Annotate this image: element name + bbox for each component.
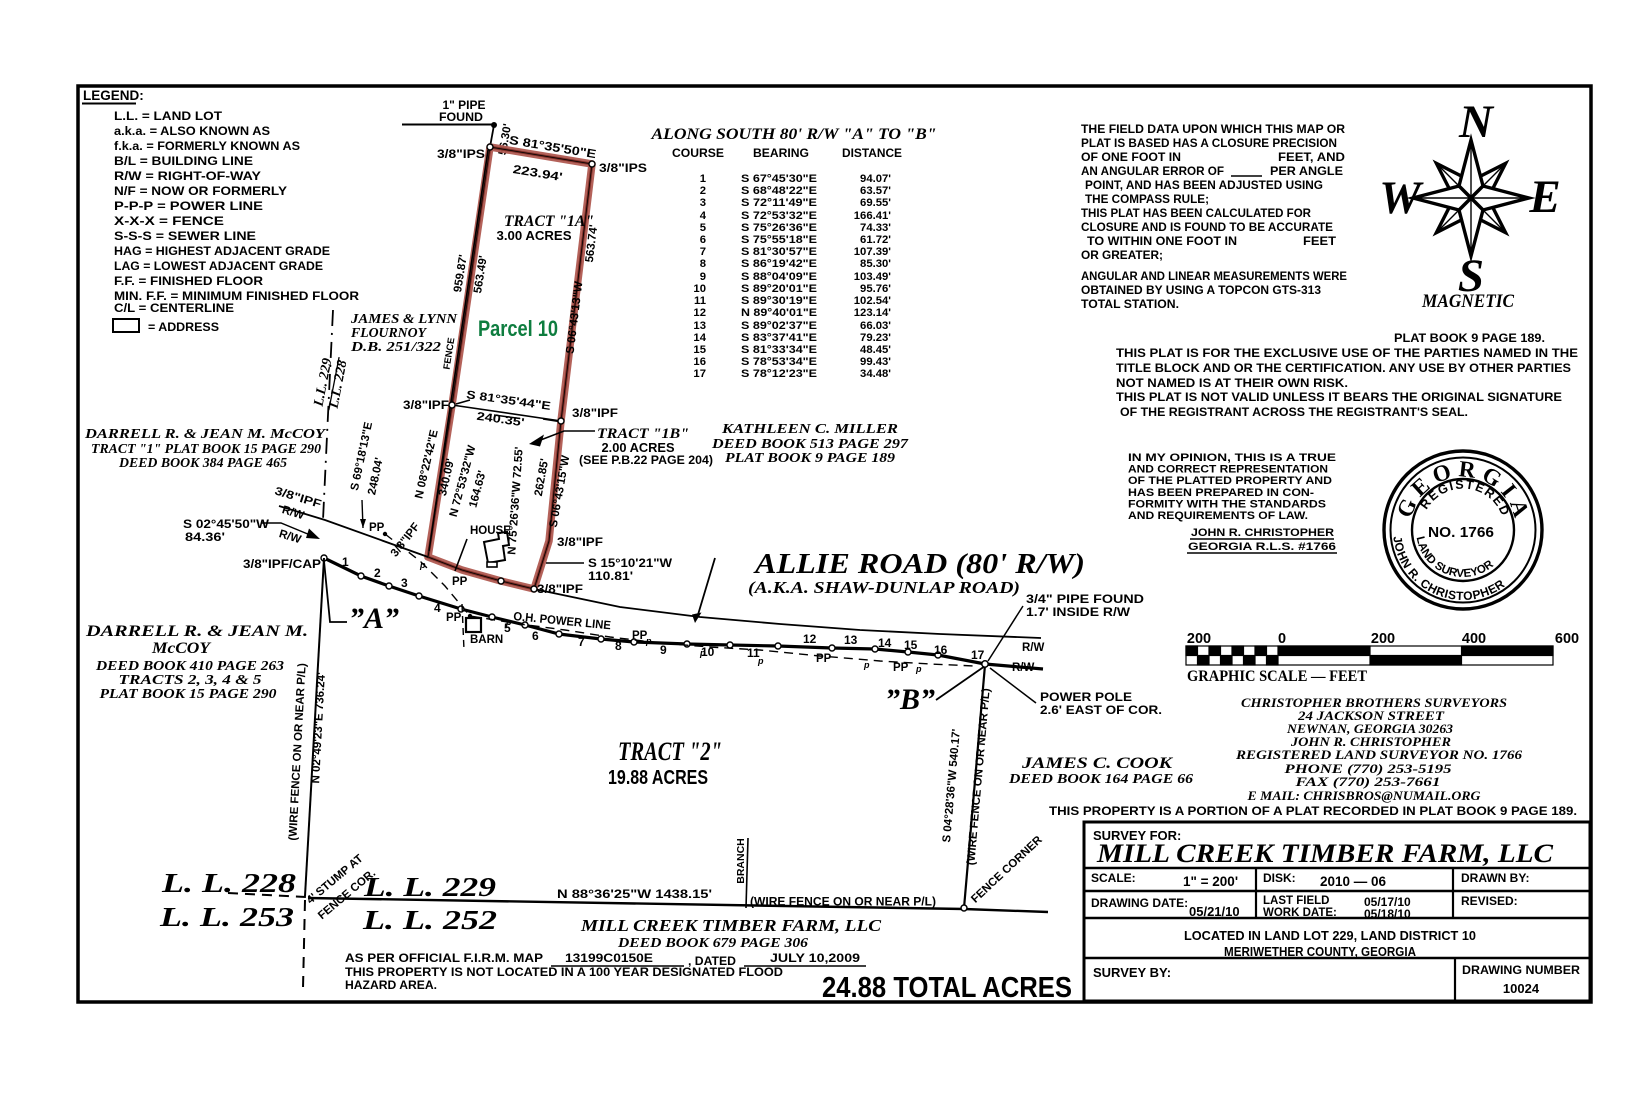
svg-text:L. L. 253: L. L. 253 <box>159 902 294 932</box>
svg-text:PP: PP <box>893 662 909 674</box>
svg-text:12: 12 <box>803 632 817 646</box>
svg-text:05/21/10: 05/21/10 <box>1189 904 1240 919</box>
svg-text:AND CORRECT REPRESENTATION: AND CORRECT REPRESENTATION <box>1128 464 1328 476</box>
svg-text:85.30': 85.30' <box>860 258 891 270</box>
svg-text:107.39': 107.39' <box>854 246 892 258</box>
svg-text:S 67°45'30"E: S 67°45'30"E <box>741 173 818 185</box>
svg-text:THE FIELD DATA UPON WHICH THIS: THE FIELD DATA UPON WHICH THIS MAP OR <box>1081 124 1346 136</box>
svg-text:L. L. 252: L. L. 252 <box>362 905 497 935</box>
svg-text:17: 17 <box>693 368 706 380</box>
svg-text:PP: PP <box>369 522 385 534</box>
svg-text:LEGEND:: LEGEND: <box>83 88 144 103</box>
svg-text:FEET, AND: FEET, AND <box>1278 152 1345 164</box>
svg-text:F.F. = FINISHED FLOOR: F.F. = FINISHED FLOOR <box>114 274 263 288</box>
svg-text:BARN: BARN <box>470 634 503 646</box>
svg-text:p: p <box>645 636 652 646</box>
svg-text:PP: PP <box>446 612 462 624</box>
svg-text:S 78°53'34"E: S 78°53'34"E <box>741 356 818 368</box>
svg-text:61.72': 61.72' <box>860 234 891 246</box>
svg-text:TRACT "1B": TRACT "1B" <box>597 426 689 442</box>
svg-text:1: 1 <box>700 173 706 185</box>
svg-text:S 86°19'42"E: S 86°19'42"E <box>741 258 818 270</box>
svg-text:3/8"IPF: 3/8"IPF <box>572 408 618 420</box>
svg-text:PP: PP <box>816 653 832 665</box>
svg-text:S 72°53'32"E: S 72°53'32"E <box>741 210 818 222</box>
svg-text:OR GREATER;: OR GREATER; <box>1081 250 1163 262</box>
svg-text:p: p <box>757 656 764 666</box>
svg-text:10: 10 <box>693 283 706 295</box>
svg-text:TO WITHIN ONE FOOT IN: TO WITHIN ONE FOOT IN <box>1087 236 1237 248</box>
svg-text:10024: 10024 <box>1503 981 1540 996</box>
svg-text:95.76': 95.76' <box>860 283 891 295</box>
svg-text:S 68°48'22"E: S 68°48'22"E <box>741 185 818 197</box>
svg-text:OF THE REGISTRANT ACROSS THE R: OF THE REGISTRANT ACROSS THE REGISTRANT'… <box>1120 407 1468 419</box>
svg-text:110.81': 110.81' <box>588 571 633 583</box>
svg-text:S 78°12'23"E: S 78°12'23"E <box>741 368 818 380</box>
svg-text:E MAIL: CHRISBROS@NUMAIL.ORG: E MAIL: CHRISBROS@NUMAIL.ORG <box>1246 788 1481 803</box>
svg-text:B/L = BUILDING LINE: B/L = BUILDING LINE <box>114 154 253 168</box>
svg-text:OBTAINED BY USING A TOPCON GTS: OBTAINED BY USING A TOPCON GTS-313 <box>1081 285 1321 297</box>
svg-text:MERIWETHER COUNTY, GEORGIA: MERIWETHER COUNTY, GEORGIA <box>1224 945 1416 959</box>
svg-text:E: E <box>1528 171 1560 223</box>
svg-text:4: 4 <box>434 601 441 615</box>
svg-text:6: 6 <box>532 629 539 643</box>
svg-text:48.45': 48.45' <box>860 344 891 356</box>
svg-text:TRACT "1" PLAT BOOK 15 PAGE 29: TRACT "1" PLAT BOOK 15 PAGE 290 <box>91 441 321 456</box>
svg-text:200: 200 <box>1371 631 1395 647</box>
svg-text:”B”: ”B” <box>885 683 935 716</box>
svg-text:15: 15 <box>693 344 706 356</box>
svg-text:103.49': 103.49' <box>854 271 892 283</box>
svg-text:THIS PLAT IS FOR THE EXCLUSIVE: THIS PLAT IS FOR THE EXCLUSIVE USE OF TH… <box>1116 348 1578 360</box>
svg-text:1.7' INSIDE R/W: 1.7' INSIDE R/W <box>1026 607 1130 619</box>
svg-text:74.33': 74.33' <box>860 222 891 234</box>
svg-text:JAMES & LYNN: JAMES & LYNN <box>350 311 458 326</box>
svg-text:LAST FIELD: LAST FIELD <box>1263 895 1329 907</box>
svg-text:5: 5 <box>700 222 706 234</box>
svg-text:13: 13 <box>693 320 706 332</box>
svg-text:1" PIPE: 1" PIPE <box>443 100 486 112</box>
svg-text:S 89°02'37"E: S 89°02'37"E <box>741 320 818 332</box>
svg-text:POINT, AND HAS BEEN ADJUSTED U: POINT, AND HAS BEEN ADJUSTED USING <box>1085 180 1323 192</box>
svg-text:POWER POLE: POWER POLE <box>1040 692 1132 704</box>
svg-text:3/8"IPF: 3/8"IPF <box>403 400 449 412</box>
svg-text:f.k.a. = FORMERLY KNOWN AS: f.k.a. = FORMERLY KNOWN AS <box>114 139 300 153</box>
svg-text:2.6' EAST OF COR.: 2.6' EAST OF COR. <box>1040 705 1162 717</box>
svg-text:N: N <box>1458 96 1495 148</box>
svg-text:LOCATED IN LAND LOT 229, LAND: LOCATED IN LAND LOT 229, LAND DISTRICT 1… <box>1184 929 1476 943</box>
svg-text:S 75°26'36"E: S 75°26'36"E <box>741 222 818 234</box>
svg-text:JOHN R. CHRISTOPHER: JOHN R. CHRISTOPHER <box>1191 527 1334 539</box>
svg-text:63.57': 63.57' <box>860 185 891 197</box>
svg-text:FOUND: FOUND <box>439 112 483 124</box>
svg-text:HAZARD AREA.: HAZARD AREA. <box>345 980 437 992</box>
svg-text:”A”: ”A” <box>349 602 399 635</box>
svg-text:14: 14 <box>693 332 706 344</box>
svg-text:p: p <box>505 617 512 627</box>
svg-text:TRACT "2": TRACT "2" <box>618 737 722 766</box>
svg-text:2: 2 <box>700 185 706 197</box>
svg-text:123.14': 123.14' <box>854 307 892 319</box>
svg-text:34.48': 34.48' <box>860 368 891 380</box>
svg-text:D.B. 251/322: D.B. 251/322 <box>350 339 442 354</box>
svg-text:400: 400 <box>1462 631 1486 647</box>
svg-text:DRAWN BY:: DRAWN BY: <box>1461 871 1529 885</box>
svg-text:THIS PLAT IS NOT VALID UNLESS: THIS PLAT IS NOT VALID UNLESS IT BEARS T… <box>1116 392 1562 404</box>
svg-text:15: 15 <box>904 638 918 652</box>
svg-text:REGISTERED LAND SURVEYOR NO. 1: REGISTERED LAND SURVEYOR NO. 1766 <box>1235 747 1523 762</box>
svg-text:9: 9 <box>660 643 667 657</box>
svg-text:McCOY: McCOY <box>151 640 211 657</box>
svg-text:7: 7 <box>700 246 706 258</box>
svg-text:TITLE BLOCK AND OR THE CERTIFI: TITLE BLOCK AND OR THE CERTIFICATION. AN… <box>1116 363 1571 375</box>
svg-text:p: p <box>915 664 922 674</box>
svg-text:DEED BOOK 513 PAGE 297: DEED BOOK 513 PAGE 297 <box>711 436 910 451</box>
svg-text:OF ONE FOOT IN: OF ONE FOOT IN <box>1081 152 1181 164</box>
svg-text:THIS PROPERTY IS NOT LOCATED I: THIS PROPERTY IS NOT LOCATED IN A 100 YE… <box>345 967 783 979</box>
svg-text:S 89°30'19"E: S 89°30'19"E <box>741 295 818 307</box>
svg-text:S 81°30'57"E: S 81°30'57"E <box>741 246 818 258</box>
svg-text:DEED BOOK 679 PAGE 306: DEED BOOK 679 PAGE 306 <box>617 935 808 950</box>
svg-text:3.00 ACRES: 3.00 ACRES <box>497 229 572 243</box>
svg-text:0: 0 <box>1278 631 1286 647</box>
svg-text:PLAT IS BASED HAS A CLOSURE PR: PLAT IS BASED HAS A CLOSURE PRECISION <box>1081 138 1337 150</box>
svg-text:DRAWING DATE:: DRAWING DATE: <box>1091 896 1188 910</box>
svg-text:8: 8 <box>700 258 706 270</box>
svg-text:P-P-P = POWER LINE: P-P-P = POWER LINE <box>114 199 263 213</box>
svg-text:PER ANGLE: PER ANGLE <box>1270 166 1343 178</box>
svg-text:TOTAL STATION.: TOTAL STATION. <box>1081 299 1179 311</box>
svg-text:3: 3 <box>401 576 408 590</box>
svg-text:ALLIE ROAD (80' R/W): ALLIE ROAD (80' R/W) <box>753 548 1085 580</box>
svg-text:99.43': 99.43' <box>860 356 891 368</box>
svg-text:84.36': 84.36' <box>185 532 225 544</box>
svg-text:1" = 200': 1" = 200' <box>1183 874 1238 889</box>
svg-text:3/8"IPS: 3/8"IPS <box>599 163 647 175</box>
svg-text:ANGULAR AND LINEAR MEASUREMENT: ANGULAR AND LINEAR MEASUREMENTS WERE <box>1081 271 1347 283</box>
svg-text:FAX (770) 253-7661: FAX (770) 253-7661 <box>1294 774 1440 789</box>
svg-text:69.55': 69.55' <box>860 197 891 209</box>
svg-text:3: 3 <box>700 197 706 209</box>
svg-text:DEED BOOK 410 PAGE 263: DEED BOOK 410 PAGE 263 <box>95 658 284 673</box>
svg-text:MILL CREEK TIMBER FARM, LLC: MILL CREEK TIMBER FARM, LLC <box>1096 839 1554 868</box>
svg-text:MILL CREEK TIMBER FARM, LLC: MILL CREEK TIMBER FARM, LLC <box>580 916 882 935</box>
svg-text:16: 16 <box>693 356 706 368</box>
svg-text:OF THE PLATTED PROPERTY AND: OF THE PLATTED PROPERTY AND <box>1128 475 1332 487</box>
svg-text:FEET: FEET <box>1303 236 1336 248</box>
svg-text:TRACT "1A": TRACT "1A" <box>504 213 594 230</box>
svg-text:IN MY OPINION, THIS IS A TRUE: IN MY OPINION, THIS IS A TRUE <box>1128 452 1336 464</box>
svg-text:S 72°11'49"E: S 72°11'49"E <box>741 197 818 209</box>
svg-text:DARRELL R. & JEAN M. McCOY: DARRELL R. & JEAN M. McCOY <box>84 426 327 441</box>
svg-text:R/W: R/W <box>1012 662 1035 674</box>
svg-text:3/8"IPF: 3/8"IPF <box>557 537 603 549</box>
svg-text:THIS PROPERTY IS A PORTION OF: THIS PROPERTY IS A PORTION OF A PLAT REC… <box>1049 806 1577 818</box>
svg-text:7: 7 <box>578 635 585 649</box>
svg-text:Parcel 10: Parcel 10 <box>478 316 558 341</box>
svg-text:DISK:: DISK: <box>1263 871 1296 885</box>
svg-text:200: 200 <box>1187 631 1211 647</box>
svg-text:1: 1 <box>342 555 349 569</box>
svg-text:(A.K.A. SHAW-DUNLAP ROAD): (A.K.A. SHAW-DUNLAP ROAD) <box>748 578 1020 597</box>
svg-text:S 81°33'34"E: S 81°33'34"E <box>741 344 818 356</box>
svg-text:NO. 1766: NO. 1766 <box>1428 525 1494 541</box>
svg-text:GRAPHIC SCALE — FEET: GRAPHIC SCALE — FEET <box>1187 668 1368 685</box>
svg-text:N 89°40'01"E: N 89°40'01"E <box>741 307 818 319</box>
svg-text:3/8"IPF: 3/8"IPF <box>537 584 583 596</box>
svg-text:a.k.a. = ALSO KNOWN AS: a.k.a. = ALSO KNOWN AS <box>114 124 270 138</box>
svg-text:8: 8 <box>615 639 622 653</box>
svg-text:102.54': 102.54' <box>854 295 892 307</box>
svg-text:PLAT BOOK 9 PAGE 189.: PLAT BOOK 9 PAGE 189. <box>1394 333 1545 345</box>
svg-text:PP: PP <box>452 576 468 588</box>
svg-text:FLOURNOY: FLOURNOY <box>350 325 428 340</box>
svg-text:p: p <box>419 560 426 570</box>
svg-text:2: 2 <box>374 566 381 580</box>
svg-text:12: 12 <box>693 307 706 319</box>
svg-text:L. L. 229: L. L. 229 <box>363 872 497 902</box>
svg-text:17: 17 <box>971 648 985 662</box>
svg-text:DRAWING NUMBER: DRAWING NUMBER <box>1462 963 1580 977</box>
svg-text:05/18/10: 05/18/10 <box>1364 907 1411 921</box>
svg-text:JAMES C. COOK: JAMES C. COOK <box>1021 755 1174 772</box>
svg-text:WORK DATE:: WORK DATE: <box>1263 907 1337 919</box>
svg-text:HOUSE: HOUSE <box>470 525 511 537</box>
svg-text:3/8"IPS: 3/8"IPS <box>437 149 485 161</box>
svg-text:4: 4 <box>700 210 707 222</box>
svg-text:SURVEY BY:: SURVEY BY: <box>1093 965 1171 980</box>
svg-text:LAG = LOWEST ADJACENT GRADE: LAG = LOWEST ADJACENT GRADE <box>114 259 323 273</box>
svg-text:S 89°20'01"E: S 89°20'01"E <box>741 283 818 295</box>
svg-text:24.88 TOTAL ACRES: 24.88 TOTAL ACRES <box>822 972 1072 1004</box>
svg-text:BRANCH: BRANCH <box>735 838 747 884</box>
svg-text:DARRELL R. & JEAN M.: DARRELL R. & JEAN M. <box>85 623 308 640</box>
svg-text:DEED BOOK 384 PAGE 465: DEED BOOK 384 PAGE 465 <box>118 455 287 470</box>
svg-text:ALONG SOUTH 80' R/W "A" TO "B": ALONG SOUTH 80' R/W "A" TO "B" <box>650 126 936 143</box>
svg-text:14: 14 <box>878 636 892 650</box>
svg-text:THIS PLAT HAS BEEN CALCULATED: THIS PLAT HAS BEEN CALCULATED FOR <box>1081 208 1312 220</box>
svg-text:DEED BOOK 164 PAGE 66: DEED BOOK 164 PAGE 66 <box>1008 771 1193 786</box>
svg-text:6: 6 <box>700 234 706 246</box>
svg-text:GEORGIA R.L.S. #1766: GEORGIA R.L.S. #1766 <box>1188 541 1336 553</box>
svg-text:COURSE: COURSE <box>672 148 724 160</box>
svg-text:CLOSURE AND IS FOUND TO BE ACC: CLOSURE AND IS FOUND TO BE ACCURATE <box>1081 222 1333 234</box>
svg-text:KATHLEEN C. MILLER: KATHLEEN C. MILLER <box>721 421 898 436</box>
svg-text:C/L = CENTERLINE: C/L = CENTERLINE <box>114 301 234 315</box>
svg-text:PLAT BOOK 9 PAGE 189: PLAT BOOK 9 PAGE 189 <box>725 450 895 465</box>
svg-text:AS PER OFFICIAL F.I.R.M. MAP: AS PER OFFICIAL F.I.R.M. MAP <box>345 953 543 965</box>
svg-text:N 88°36'25"W 1438.15': N 88°36'25"W 1438.15' <box>557 889 712 901</box>
svg-text:HAG = HIGHEST ADJACENT GRADE: HAG = HIGHEST ADJACENT GRADE <box>114 244 330 258</box>
svg-text:JULY 10,2009: JULY 10,2009 <box>770 953 860 965</box>
svg-text:PLAT BOOK 15 PAGE 290: PLAT BOOK 15 PAGE 290 <box>100 686 277 701</box>
svg-text:3/8"IPF/CAP: 3/8"IPF/CAP <box>243 559 321 571</box>
svg-text:(SEE P.B.22 PAGE 204): (SEE P.B.22 PAGE 204) <box>579 453 713 467</box>
svg-text:FORMITY WITH THE STANDARDS: FORMITY WITH THE STANDARDS <box>1128 498 1326 510</box>
svg-text:S 75°55'18"E: S 75°55'18"E <box>741 234 818 246</box>
svg-text:79.23': 79.23' <box>860 332 891 344</box>
svg-text:13199C0150E: 13199C0150E <box>565 953 653 965</box>
svg-text:X-X-X = FENCE: X-X-X = FENCE <box>114 214 224 228</box>
svg-text:NOT NAMED IS AT THEIR OWN RISK: NOT NAMED IS AT THEIR OWN RISK. <box>1116 378 1348 390</box>
svg-text:19.88 ACRES: 19.88 ACRES <box>608 767 708 789</box>
svg-text:TRACTS 2, 3, 4 & 5: TRACTS 2, 3, 4 & 5 <box>119 672 262 687</box>
svg-text:R/W = RIGHT-OF-WAY: R/W = RIGHT-OF-WAY <box>114 169 261 183</box>
svg-text:MAGNETIC: MAGNETIC <box>1421 291 1514 312</box>
svg-text:9: 9 <box>700 271 706 283</box>
svg-text:SCALE:: SCALE: <box>1091 871 1136 885</box>
svg-text:S 88°04'09"E: S 88°04'09"E <box>741 271 818 283</box>
svg-text:600: 600 <box>1555 631 1579 647</box>
svg-text:94.07': 94.07' <box>860 173 891 185</box>
svg-text:3/4" PIPE FOUND: 3/4" PIPE FOUND <box>1026 594 1144 606</box>
svg-text:S-S-S = SEWER LINE: S-S-S = SEWER LINE <box>114 229 256 243</box>
svg-text:11: 11 <box>694 295 706 307</box>
svg-text:= ADDRESS: = ADDRESS <box>148 320 219 334</box>
svg-text:REVISED:: REVISED: <box>1461 894 1518 908</box>
svg-text:S 15°10'21"W: S 15°10'21"W <box>588 558 672 570</box>
svg-text:DISTANCE: DISTANCE <box>842 148 902 160</box>
svg-text:L. L. 228: L. L. 228 <box>161 868 297 898</box>
svg-text:AN ANGULAR ERROR OF: AN ANGULAR ERROR OF <box>1081 166 1224 178</box>
svg-text:N/F = NOW OR FORMERLY: N/F = NOW OR FORMERLY <box>114 184 287 198</box>
svg-text:BEARING: BEARING <box>753 148 809 160</box>
svg-text:S 02°45'50"W: S 02°45'50"W <box>183 519 269 531</box>
svg-text:L.L. = LAND LOT: L.L. = LAND LOT <box>114 109 223 123</box>
svg-text:R/W: R/W <box>1022 642 1045 654</box>
svg-text:W: W <box>1379 172 1424 224</box>
svg-text:13: 13 <box>844 633 858 647</box>
svg-text:THE COMPASS RULE;: THE COMPASS RULE; <box>1085 194 1209 206</box>
svg-text:166.41': 166.41' <box>854 210 892 222</box>
svg-text:S 83°37'41"E: S 83°37'41"E <box>741 332 818 344</box>
svg-text:p: p <box>863 660 870 670</box>
svg-text:(WIRE FENCE ON OR NEAR P/L): (WIRE FENCE ON OR NEAR P/L) <box>750 897 936 909</box>
svg-text:HAS BEEN PREPARED IN CON-: HAS BEEN PREPARED IN CON- <box>1128 487 1314 499</box>
svg-text:p: p <box>699 648 706 658</box>
svg-text:16: 16 <box>934 643 948 657</box>
svg-text:AND REQUIREMENTS OF LAW.: AND REQUIREMENTS OF LAW. <box>1128 510 1308 522</box>
svg-text:66.03': 66.03' <box>860 320 891 332</box>
svg-text:2010 — 06: 2010 — 06 <box>1320 874 1387 889</box>
